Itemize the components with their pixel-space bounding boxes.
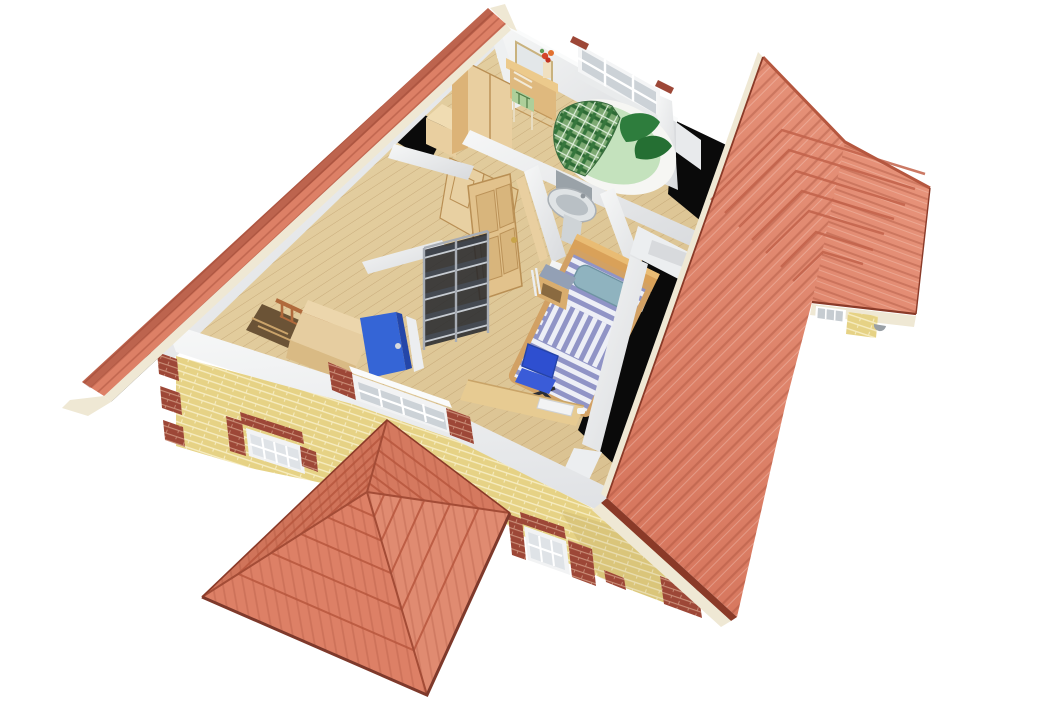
dormer-brick [846,312,878,338]
house-cutaway-render [0,0,1044,720]
render-canvas [0,0,1044,720]
metal-shelving-unit [424,231,488,350]
mouse [577,408,585,414]
door-handle [395,343,401,349]
door-knob [511,237,517,243]
blue-door [360,312,424,378]
